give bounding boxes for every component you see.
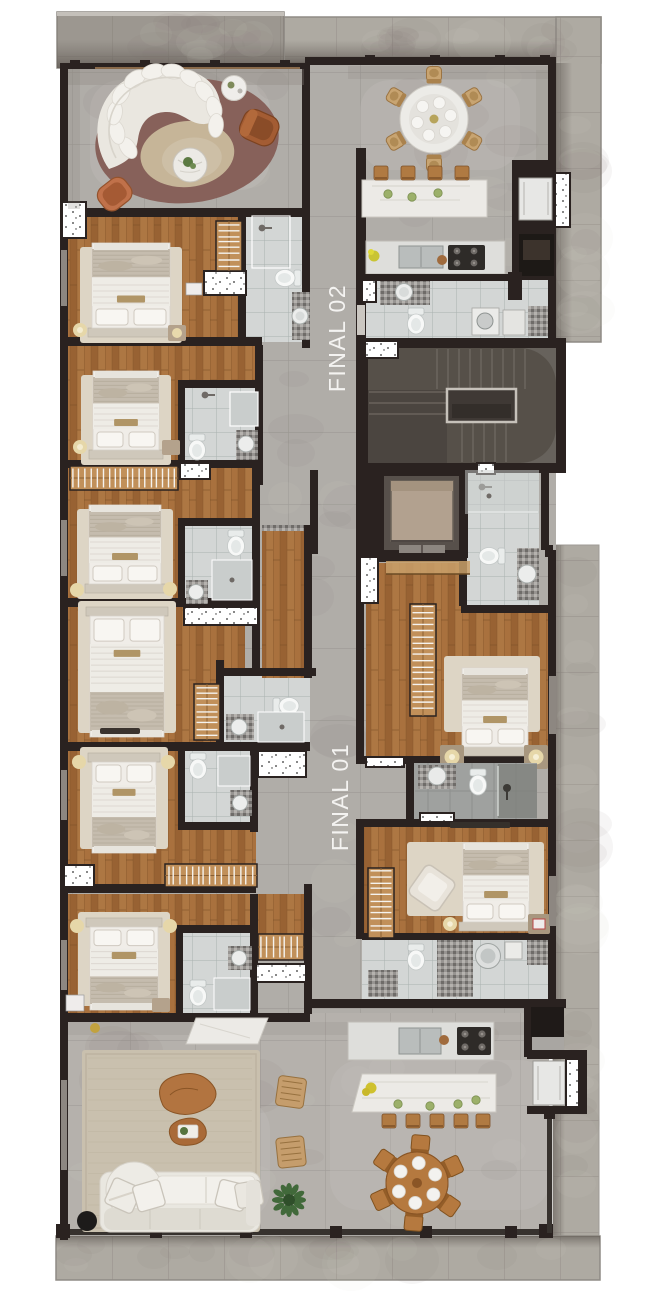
svg-text:FINAL 01: FINAL 01 xyxy=(327,743,353,851)
svg-text:FINAL 02: FINAL 02 xyxy=(324,284,350,392)
